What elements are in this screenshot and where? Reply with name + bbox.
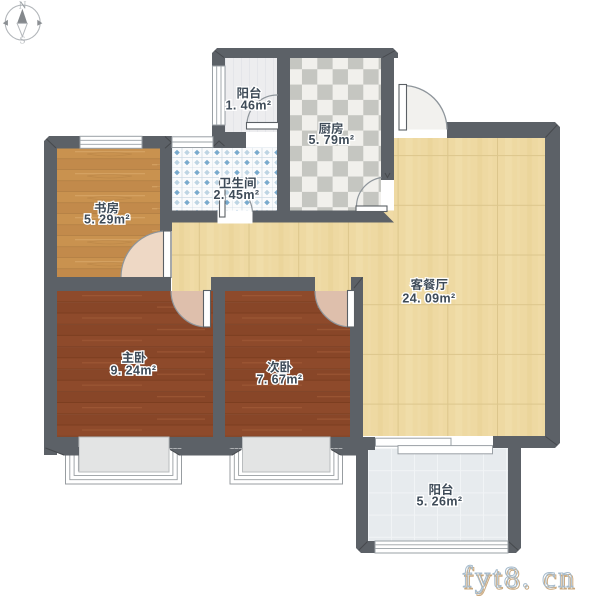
svg-text:5. 26m²: 5. 26m² xyxy=(417,495,463,509)
svg-text:7. 67m²: 7. 67m² xyxy=(257,373,303,387)
svg-text:N: N xyxy=(19,1,27,12)
svg-text:24. 09m²: 24. 09m² xyxy=(402,292,455,306)
svg-text:fyt8. cn: fyt8. cn xyxy=(462,559,576,594)
svg-text:2. 45m²: 2. 45m² xyxy=(214,188,260,202)
svg-text:5. 79m²: 5. 79m² xyxy=(309,133,355,147)
svg-text:5. 29m²: 5. 29m² xyxy=(84,212,130,226)
svg-text:1. 46m²: 1. 46m² xyxy=(226,99,272,113)
svg-text:S: S xyxy=(20,36,26,47)
svg-text:9. 24m²: 9. 24m² xyxy=(111,364,157,378)
